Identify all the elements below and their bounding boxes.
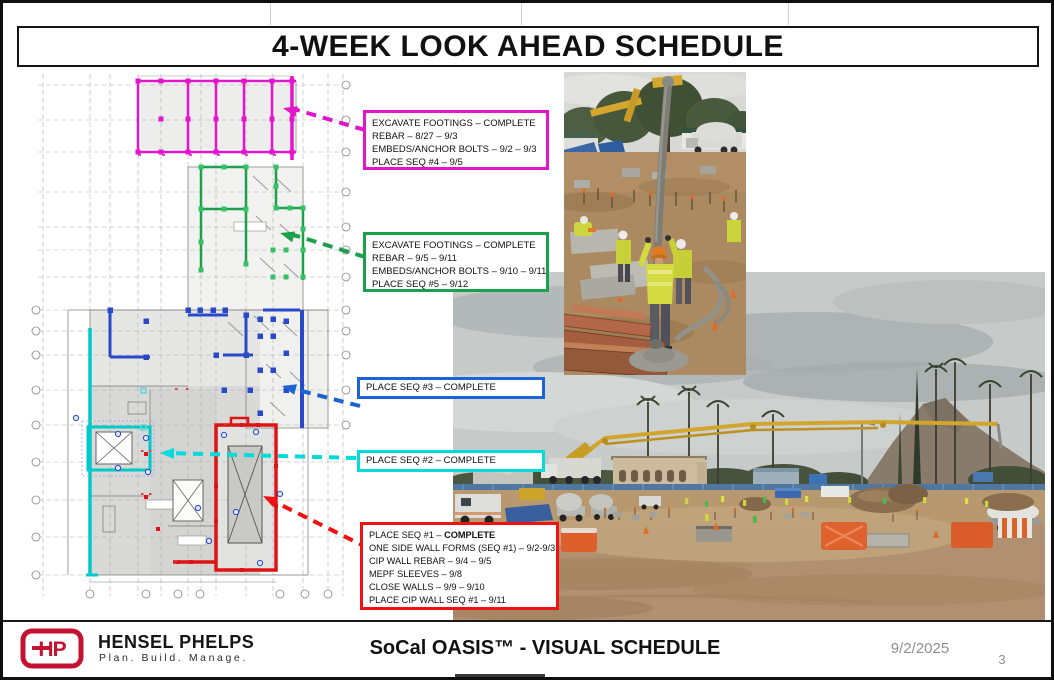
footer-title: SoCal OASIS™ - VISUAL SCHEDULE: [330, 637, 760, 660]
callout-line: PLACE SEQ #1 – COMPLETE: [369, 529, 550, 542]
company-name: HENSEL PHELPS: [98, 632, 254, 653]
callout-seq4: EXCAVATE FOOTINGS – COMPLETE REBAR – 8/2…: [363, 110, 549, 170]
grid-tick: [270, 3, 271, 25]
callout-line: CLOSE WALLS – 9/9 – 9/10: [369, 581, 550, 594]
hensel-phelps-logo-icon: HP: [20, 628, 84, 670]
footer-divider: [0, 620, 1054, 622]
callout-seq5: EXCAVATE FOOTINGS – COMPLETE REBAR – 9/5…: [363, 232, 549, 292]
bottom-bar: [455, 674, 545, 680]
grid-tick: [521, 3, 522, 25]
floor-plan-drawing: [28, 66, 360, 620]
callout-line: CIP WALL REBAR – 9/4 – 9/5: [369, 555, 550, 568]
page-number: 3: [992, 652, 1012, 667]
callout-seq3: PLACE SEQ #3 – COMPLETE: [357, 377, 545, 399]
callout-seq2: PLACE SEQ #2 – COMPLETE: [357, 450, 545, 472]
callout-line: REBAR – 9/5 – 9/11: [372, 252, 540, 265]
photo-concrete-pour: [564, 72, 746, 375]
callout-line: EXCAVATE FOOTINGS – COMPLETE: [372, 117, 540, 130]
footer-date: 9/2/2025: [870, 640, 970, 657]
callout-line: PLACE SEQ #3 – COMPLETE: [366, 381, 536, 394]
callout-line: EMBEDS/ANCHOR BOLTS – 9/2 – 9/3: [372, 143, 540, 156]
callout-seq1: PLACE SEQ #1 – COMPLETE ONE SIDE WALL FO…: [360, 522, 559, 610]
page-title: 4-WEEK LOOK AHEAD SCHEDULE: [272, 30, 784, 64]
callout-line: ONE SIDE WALL FORMS (SEQ #1) – 9/2-9/3: [369, 542, 550, 555]
company-tagline: Plan. Build. Manage.: [99, 652, 248, 664]
title-box: 4-WEEK LOOK AHEAD SCHEDULE: [17, 26, 1039, 67]
callout-line: EXCAVATE FOOTINGS – COMPLETE: [372, 239, 540, 252]
callout-line: PLACE CIP WALL SEQ #1 – 9/11: [369, 594, 550, 607]
callout-line: PLACE SEQ #2 – COMPLETE: [366, 454, 536, 467]
grid-tick: [788, 3, 789, 25]
callout-line: PLACE SEQ #5 – 9/12: [372, 278, 540, 291]
slide: 4-WEEK LOOK AHEAD SCHEDULE: [0, 0, 1054, 680]
callout-line: PLACE SEQ #4 – 9/5: [372, 156, 540, 169]
callout-line: EMBEDS/ANCHOR BOLTS – 9/10 – 9/11: [372, 265, 540, 278]
callout-line: REBAR – 8/27 – 9/3: [372, 130, 540, 143]
callout-line: MEPF SLEEVES – 9/8: [369, 568, 550, 581]
crossed-pad: [173, 480, 203, 521]
